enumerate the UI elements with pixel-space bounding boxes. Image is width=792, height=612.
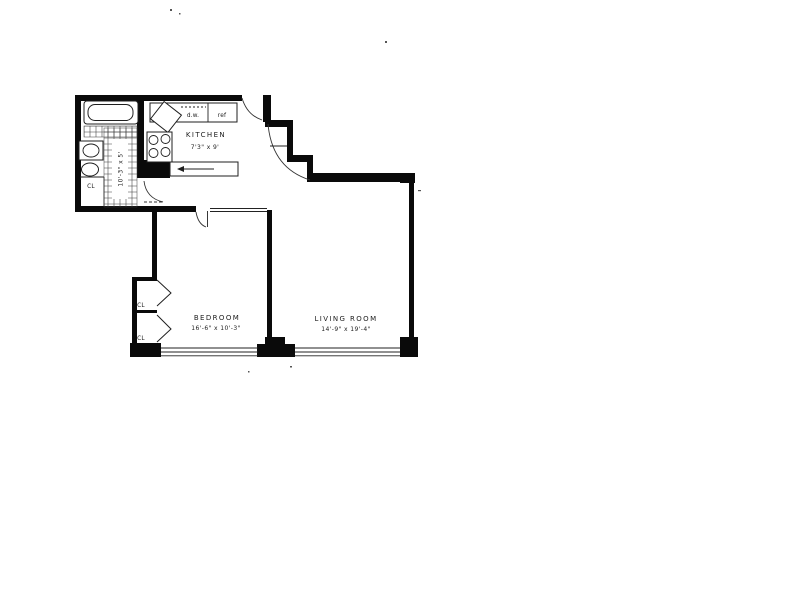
bedroom-dims-label: 16'-6" x 10'-3" — [191, 325, 240, 332]
closet-label-bedroom-upper: CL — [137, 303, 145, 309]
wall-bedroom-left-upper — [152, 212, 157, 277]
wall-right — [409, 178, 414, 340]
closet-label-bedroom-lower: CL — [137, 336, 145, 342]
floor-plan-scan: 10'-3" x 5' CL d.w. ref KITCHEN 7'3" x 9… — [0, 0, 792, 612]
wall-bedroom-living-divider — [267, 210, 272, 345]
closet-door-upper — [157, 280, 171, 306]
closet-door-lower — [157, 315, 171, 342]
bedroom-name-label: BEDROOM — [194, 314, 240, 322]
floor-plan-drawing: 10'-3" x 5' CL d.w. ref KITCHEN 7'3" x 9… — [0, 0, 792, 612]
dishwasher-label: d.w. — [187, 113, 199, 119]
kitchen-dims-label: 7'3" x 9' — [191, 144, 219, 151]
wall-entry-jamb — [263, 95, 271, 122]
wall-closet-divider — [132, 310, 157, 313]
entry-door-arc — [242, 98, 262, 120]
entry-hall — [242, 98, 310, 180]
window-bedroom — [161, 348, 258, 356]
closet-label-foyer: CL — [87, 184, 95, 190]
living-room: LIVING ROOM 14'-9" x 19'-4" — [314, 315, 377, 333]
wall-top — [75, 95, 242, 101]
toilet — [82, 163, 99, 176]
wall-living-top — [307, 173, 409, 182]
bedroom-north-partition — [210, 209, 267, 212]
wall-kitchen-chunk — [137, 160, 170, 178]
bedroom-door-arc — [196, 212, 206, 227]
living-room-name-label: LIVING ROOM — [314, 315, 377, 323]
window-living-room — [295, 348, 400, 356]
refrigerator-label: ref — [218, 113, 227, 119]
wall-step-v1 — [287, 120, 293, 157]
gallery-dims-label: 10'-3" x 5' — [118, 151, 125, 186]
kitchen-name-label: KITCHEN — [186, 131, 226, 139]
bathtub-basin — [88, 105, 133, 121]
gallery-door-arc — [144, 181, 163, 202]
wall-step-v2 — [307, 155, 313, 182]
column-bottom-middle — [257, 344, 295, 357]
column-bottom-left — [130, 343, 161, 357]
living-room-dims-label: 14'-9" x 19'-4" — [321, 326, 370, 333]
